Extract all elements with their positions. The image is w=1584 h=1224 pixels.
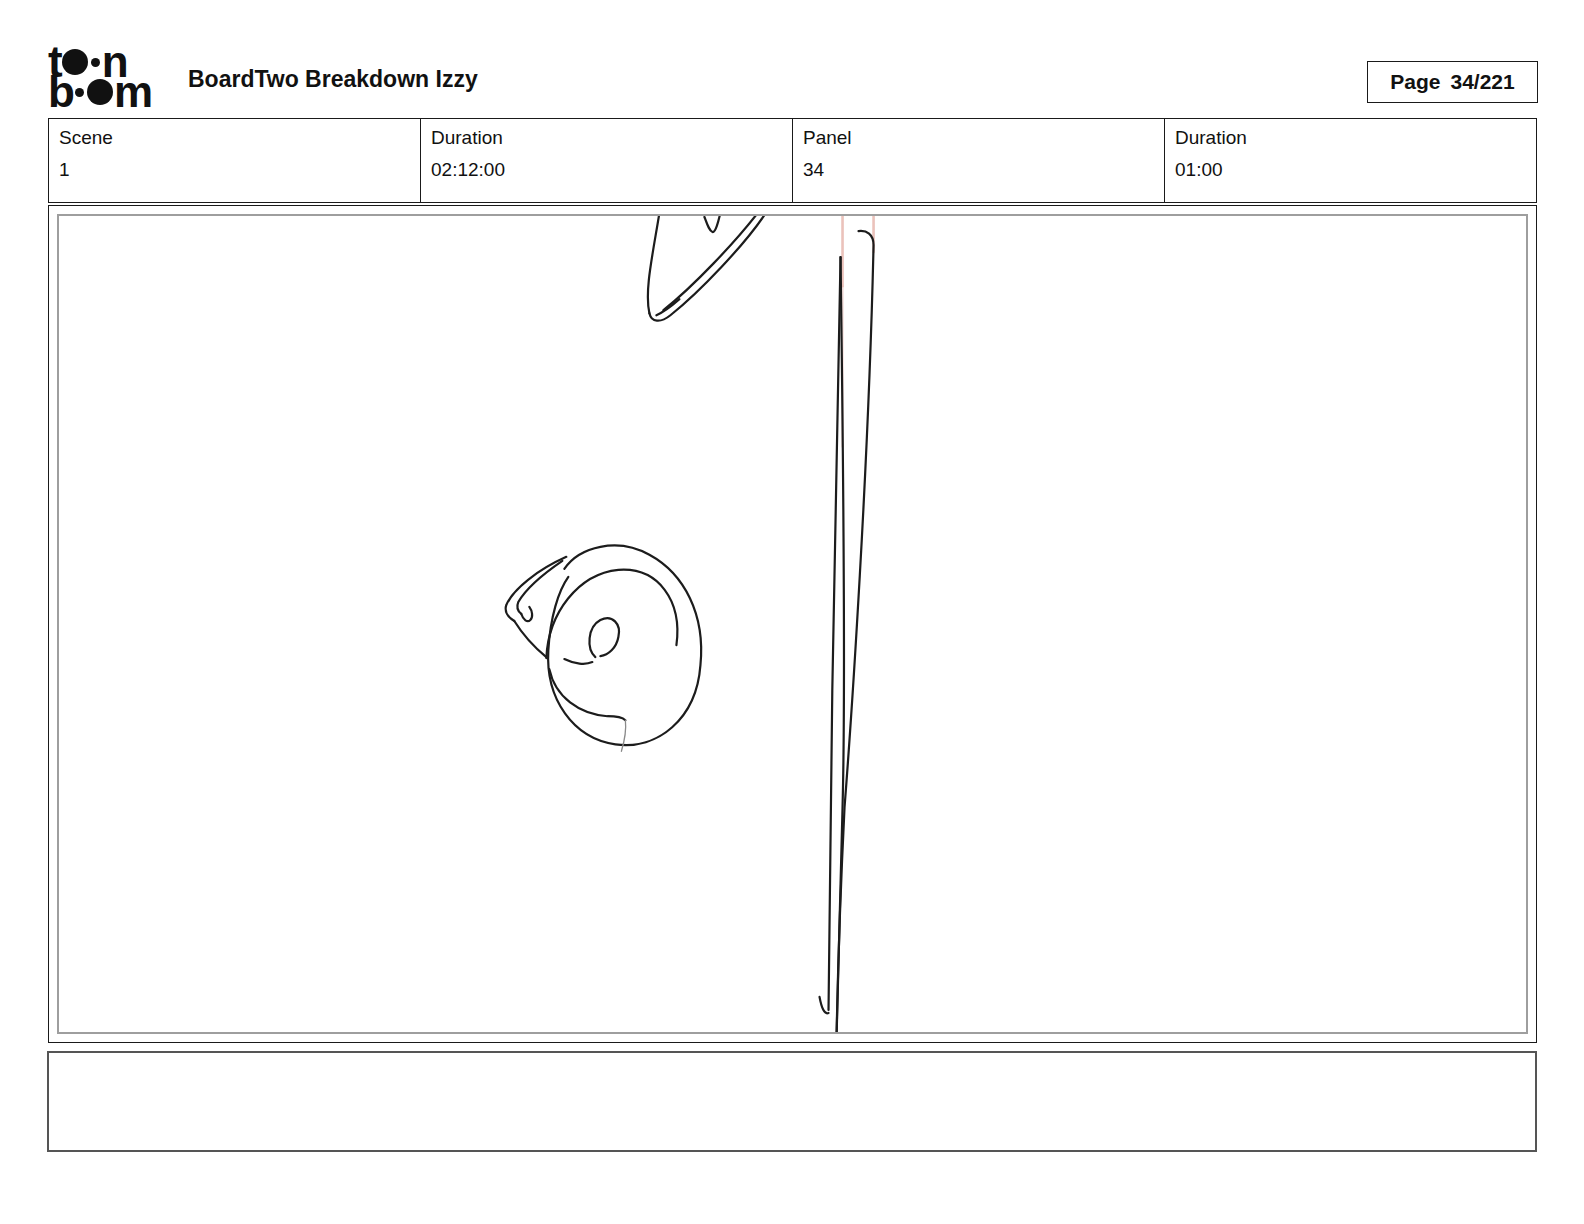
document-title: BoardTwo Breakdown Izzy: [188, 66, 478, 93]
storyboard-pdf-page: t n b m BoardTwo Breakdown Izzy Page 34/…: [0, 0, 1584, 1224]
scene-duration-value: 02:12:00: [431, 159, 792, 181]
panel-duration-label: Duration: [1175, 127, 1536, 149]
logo-small-dot-icon: [91, 58, 100, 67]
page-label: Page: [1390, 70, 1440, 94]
needle-with-arrow: [820, 231, 874, 1032]
checkmark-top: [704, 216, 721, 232]
scene-label: Scene: [59, 127, 420, 149]
scene-value: 1: [59, 159, 420, 181]
scene-duration-label: Duration: [431, 127, 792, 149]
toonboom-logo-row2: b m: [48, 76, 151, 108]
spiral-snail: [546, 546, 701, 746]
storyboard-panel-frame: [48, 205, 1537, 1043]
logo-big-dot-icon: [87, 79, 113, 105]
cone-curve-top: [648, 216, 767, 321]
spiral-left-flap: [506, 557, 567, 657]
caption-box: [47, 1051, 1537, 1152]
page-number-box: Page 34/221: [1367, 61, 1538, 103]
page-value: 34/221: [1450, 70, 1514, 94]
info-cell-panel-duration: Duration 01:00: [1165, 119, 1536, 202]
logo-small-dot-icon: [75, 88, 84, 97]
storyboard-sketch: [59, 216, 1526, 1032]
spiral-drop-tail: [621, 720, 625, 751]
logo-letter-m: m: [114, 76, 151, 108]
storyboard-panel-canvas: [57, 214, 1528, 1034]
logo-letter-b: b: [48, 76, 73, 108]
panel-info-table: Scene 1 Duration 02:12:00 Panel 34 Durat…: [48, 118, 1537, 203]
toonboom-logo: t n b m: [48, 46, 151, 108]
panel-value: 34: [803, 159, 1164, 181]
panel-duration-value: 01:00: [1175, 159, 1536, 181]
info-cell-scene-duration: Duration 02:12:00: [421, 119, 793, 202]
panel-label: Panel: [803, 127, 1164, 149]
info-cell-scene: Scene 1: [49, 119, 421, 202]
info-cell-panel: Panel 34: [793, 119, 1165, 202]
